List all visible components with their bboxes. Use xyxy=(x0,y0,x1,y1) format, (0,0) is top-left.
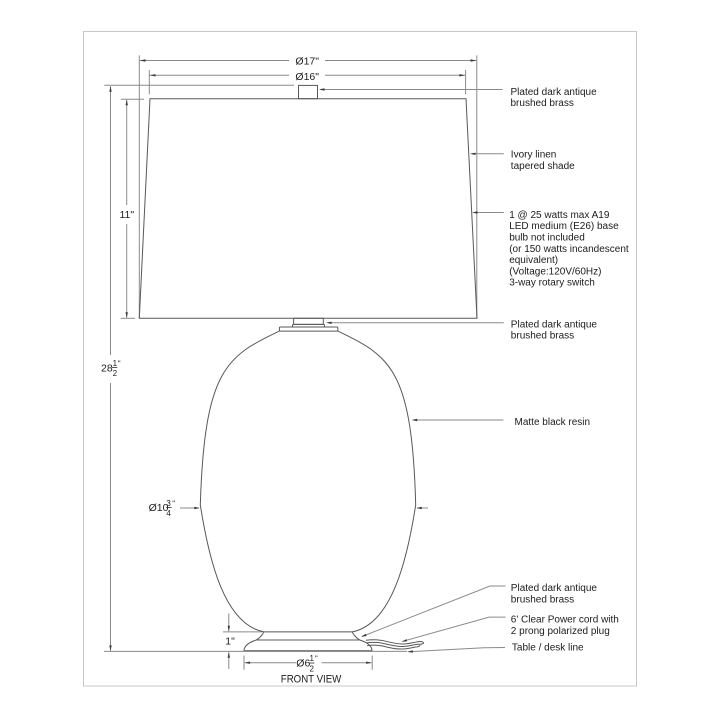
svg-text:Matte black resin: Matte black resin xyxy=(515,417,591,428)
svg-text:": " xyxy=(172,499,175,508)
svg-text:LED medium (E26) base: LED medium (E26) base xyxy=(509,221,619,232)
svg-text:Ivory linen: Ivory linen xyxy=(511,150,557,161)
svg-text:(Voltage:120V/60Hz): (Voltage:120V/60Hz) xyxy=(509,266,601,277)
svg-text:tapered shade: tapered shade xyxy=(511,161,575,172)
svg-text:Ø16": Ø16" xyxy=(295,71,319,83)
svg-text:": " xyxy=(315,655,318,664)
svg-text:": " xyxy=(118,360,121,369)
svg-text:4: 4 xyxy=(166,509,171,518)
svg-text:Plated dark antique: Plated dark antique xyxy=(511,319,598,330)
svg-text:brushed brass: brushed brass xyxy=(511,331,574,342)
svg-text:Table / desk line: Table / desk line xyxy=(512,642,584,653)
svg-text:Plated dark antique: Plated dark antique xyxy=(511,583,598,594)
svg-text:Plated dark antique: Plated dark antique xyxy=(511,87,598,98)
svg-text:11": 11" xyxy=(120,209,135,221)
svg-text:brushed brass: brushed brass xyxy=(511,98,574,109)
svg-text:2 prong polarized plug: 2 prong polarized plug xyxy=(511,626,610,637)
svg-text:28: 28 xyxy=(101,363,113,375)
svg-text:2: 2 xyxy=(310,664,315,673)
svg-text:1: 1 xyxy=(310,654,315,663)
svg-text:Ø6: Ø6 xyxy=(296,658,310,670)
svg-text:3-way rotary switch: 3-way rotary switch xyxy=(509,278,595,289)
svg-text:2: 2 xyxy=(113,369,118,378)
svg-text:(or 150 watts incandescent: (or 150 watts incandescent xyxy=(509,244,629,255)
svg-text:equivalent): equivalent) xyxy=(509,255,558,266)
svg-text:brushed brass: brushed brass xyxy=(511,594,574,605)
svg-text:Ø17": Ø17" xyxy=(295,55,319,67)
svg-text:3: 3 xyxy=(166,499,171,508)
svg-text:1": 1" xyxy=(225,636,235,648)
svg-text:FRONT VIEW: FRONT VIEW xyxy=(281,674,342,686)
svg-text:1 @ 25 watts max A19: 1 @ 25 watts max A19 xyxy=(509,210,610,221)
svg-text:bulb not included: bulb not included xyxy=(509,233,585,244)
svg-text:6' Clear Power cord with: 6' Clear Power cord with xyxy=(511,615,619,626)
